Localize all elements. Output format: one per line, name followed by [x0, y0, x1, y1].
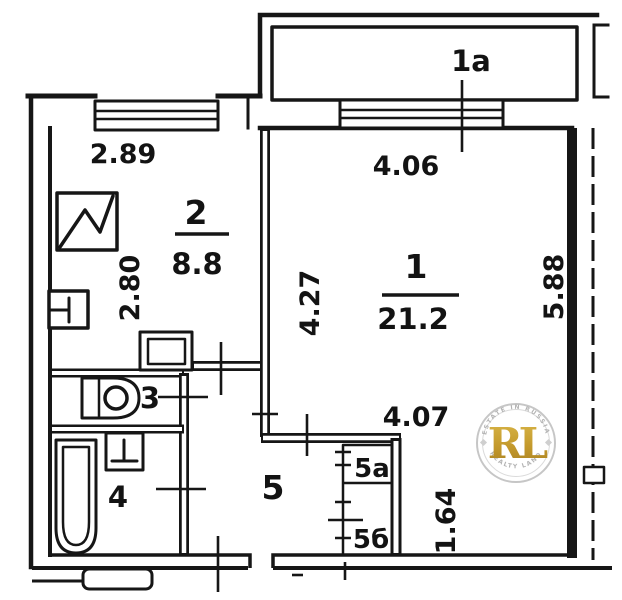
- label-closet-b-number: 5б: [353, 525, 389, 555]
- entrance-step: [83, 569, 152, 589]
- label-balcony-number: 1a: [451, 44, 491, 78]
- washbasin-symbol: [106, 433, 143, 470]
- watermark-logo: ESTATE IN RUSSIA REALTY LAND RL: [477, 404, 555, 482]
- toilet-symbol: [82, 378, 139, 418]
- dim-room1-top: 4.06: [373, 151, 440, 182]
- right-wall-niche: [584, 467, 604, 483]
- vent-shaft: [140, 332, 192, 370]
- dim-room1-left: 4.27: [295, 270, 326, 337]
- bathtub-symbol: [56, 440, 96, 553]
- dim-room1-lower: 1.64: [431, 488, 462, 555]
- stove-symbol: [57, 193, 117, 250]
- floor-plan-svg: 1a 1 21.2 2 8.8 3 4 5 5а 5б 2.89 2.80 4.…: [0, 0, 622, 600]
- dim-kitchen-width: 2.89: [90, 139, 157, 170]
- floor-plan: 1a 1 21.2 2 8.8 3 4 5 5а 5б 2.89 2.80 4.…: [0, 0, 622, 600]
- watermark-initials: RL: [488, 419, 548, 468]
- dim-room1-bottom: 4.07: [383, 402, 450, 433]
- label-room1-area: 21.2: [377, 302, 449, 336]
- label-toilet-number: 3: [140, 381, 160, 415]
- neighbour-balcony-wall: [594, 25, 608, 97]
- label-kitchen-area: 8.8: [171, 247, 222, 281]
- label-room1-number: 1: [405, 247, 428, 286]
- label-closet-a-number: 5а: [354, 454, 390, 484]
- balcony-parapet: [272, 27, 577, 100]
- label-bathroom-number: 4: [108, 480, 128, 514]
- label-kitchen-number: 2: [185, 193, 208, 232]
- dim-room1-right: 5.88: [539, 254, 570, 321]
- kitchen-sink-symbol: [49, 291, 88, 328]
- kitchen-window: [95, 101, 218, 130]
- label-hallway-number: 5: [262, 468, 285, 507]
- dim-kitchen-depth: 2.80: [115, 255, 146, 322]
